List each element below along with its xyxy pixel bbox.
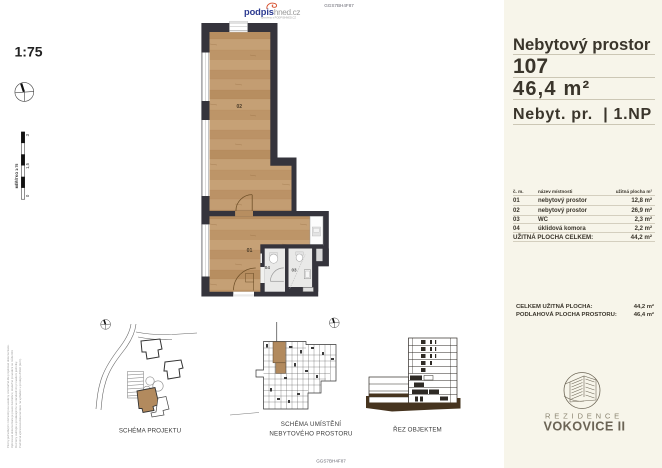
svg-text:04: 04 [265, 265, 271, 270]
svg-text:NEBYTOVÉHO PROSTORU: NEBYTOVÉHO PROSTORU [269, 430, 352, 437]
svg-text:02: 02 [237, 104, 243, 110]
svg-text:GGS7BH4F87: GGS7BH4F87 [324, 3, 354, 8]
svg-text:01: 01 [247, 248, 253, 254]
svg-text:SCHÉMA UMÍSTĚNÍ: SCHÉMA UMÍSTĚNÍ [281, 420, 341, 428]
svg-text:SCHÉMA PROJEKTU: SCHÉMA PROJEKTU [119, 427, 181, 434]
svg-text:vytvořeno s PODPISHNED.CZ: vytvořeno s PODPISHNED.CZ [261, 15, 297, 19]
svg-text:MĚŘÍTKO 1:75: MĚŘÍTKO 1:75 [14, 164, 19, 189]
svg-text:1:75: 1:75 [15, 44, 43, 60]
svg-text:VOKOVICE II: VOKOVICE II [544, 419, 626, 433]
svg-text:3: 3 [25, 133, 30, 136]
svg-text:ŘEZ OBJEKTEM: ŘEZ OBJEKTEM [393, 426, 442, 434]
svg-text:03: 03 [292, 268, 298, 273]
svg-text:Podrobná výkresová dokumentace: Podrobná výkresová dokumentace na vyžádá… [18, 358, 22, 448]
svg-text:0: 0 [25, 194, 30, 197]
svg-text:GGS7BH4F87: GGS7BH4F87 [316, 459, 346, 464]
svg-text:1,5: 1,5 [25, 162, 30, 168]
